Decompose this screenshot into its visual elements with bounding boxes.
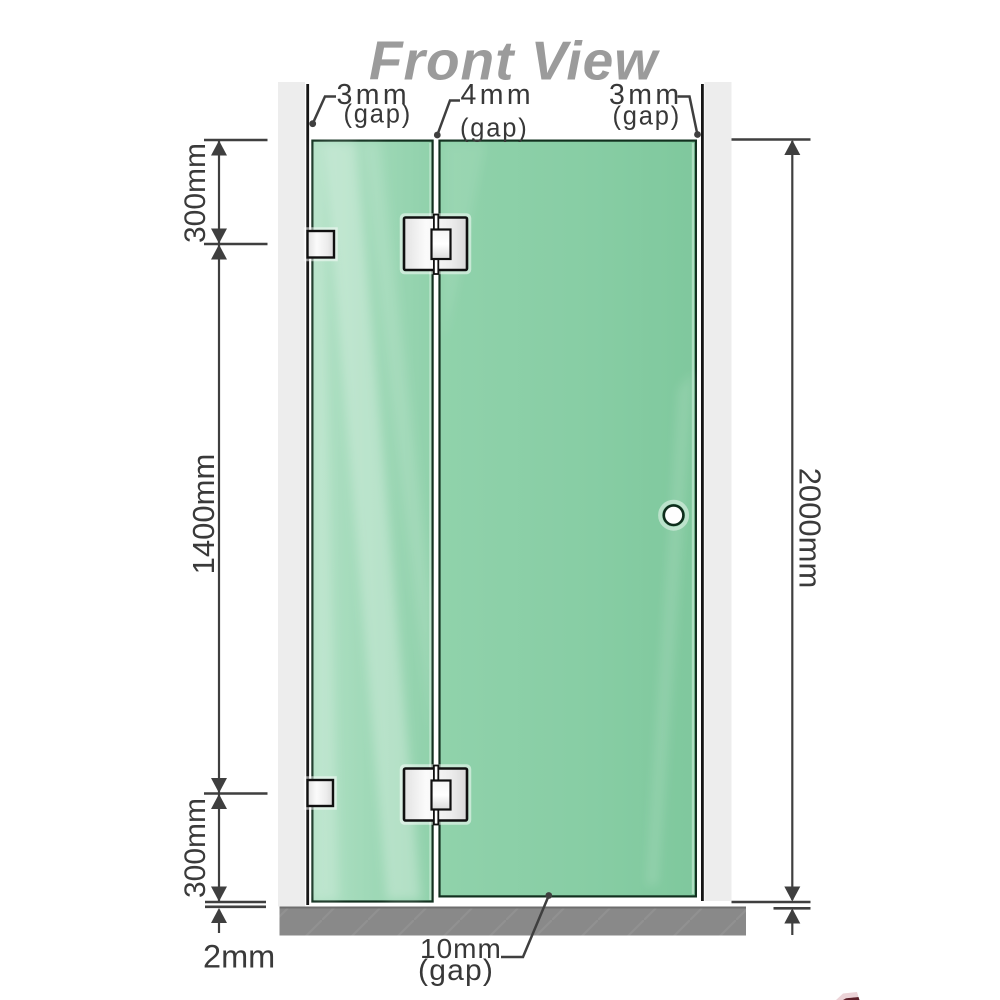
svg-text:(gap): (gap) bbox=[344, 101, 413, 129]
svg-text:1400mm: 1400mm bbox=[186, 454, 221, 575]
svg-text:4mm: 4mm bbox=[461, 79, 535, 111]
svg-text:300mm: 300mm bbox=[179, 143, 212, 243]
svg-text:2mm: 2mm bbox=[203, 939, 275, 975]
svg-text:(gap): (gap) bbox=[460, 115, 529, 143]
svg-text:(gap): (gap) bbox=[613, 103, 682, 131]
svg-text:2000mm: 2000mm bbox=[792, 468, 827, 589]
svg-text:300mm: 300mm bbox=[179, 798, 212, 898]
svg-text:(gap): (gap) bbox=[418, 954, 494, 987]
